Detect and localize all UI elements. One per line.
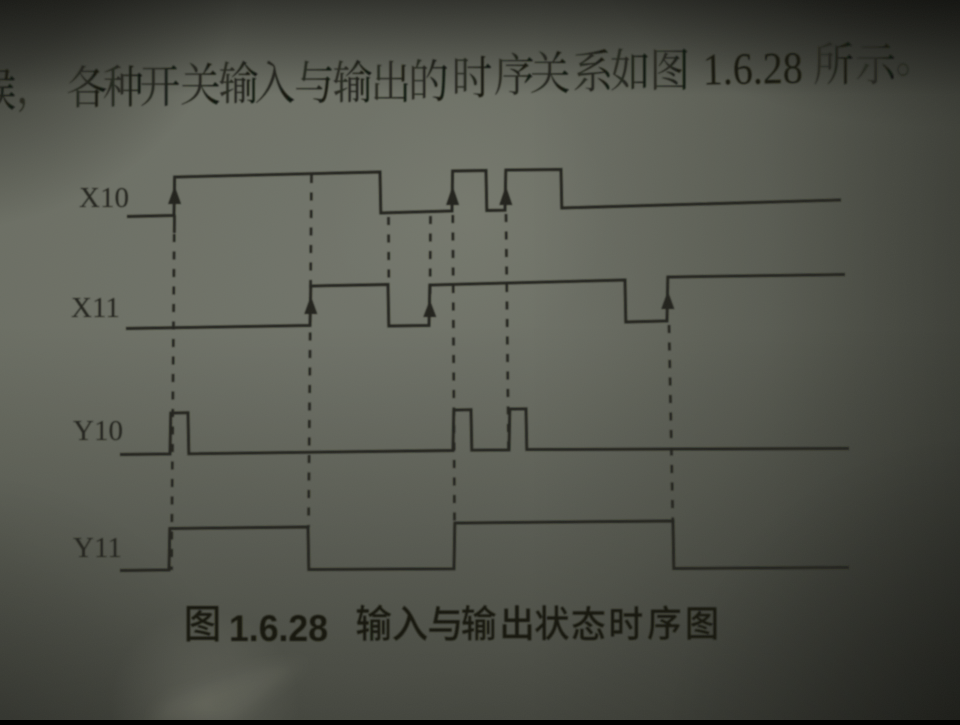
svg-text:X10: X10 — [79, 182, 129, 214]
svg-text:X11: X11 — [71, 292, 120, 324]
svg-text:1.6.28: 1.6.28 — [702, 43, 803, 95]
svg-text:Y10: Y10 — [73, 415, 123, 447]
svg-text:Y11: Y11 — [73, 532, 122, 564]
svg-text:1.6.28: 1.6.28 — [229, 608, 328, 649]
